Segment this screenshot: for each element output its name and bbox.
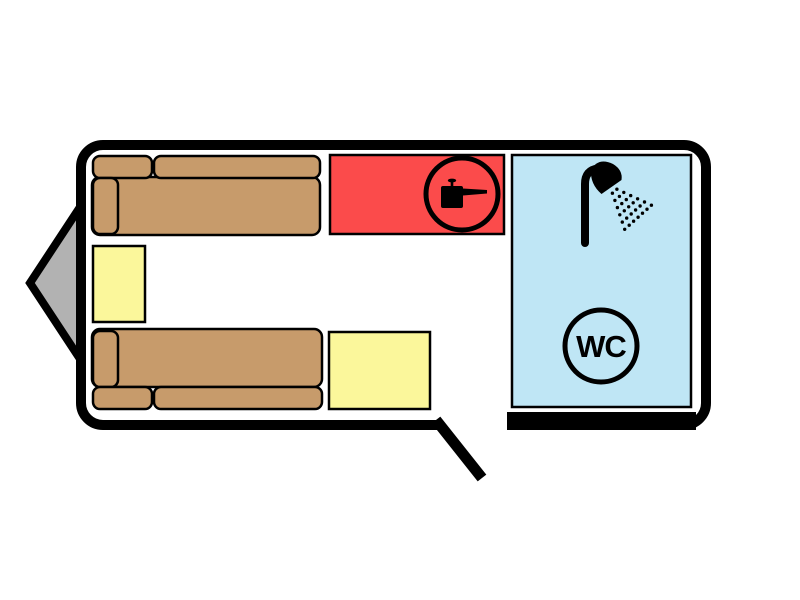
center-table	[329, 332, 430, 409]
wc-label: WC	[576, 329, 626, 364]
side-table-left	[93, 246, 145, 322]
sofa-bottom-backrest-right	[154, 387, 322, 409]
caravan-floor-plan: WC	[0, 0, 800, 600]
sofa-top-armrest	[93, 178, 118, 234]
sofa-top-backrest-right	[154, 156, 320, 178]
kitchen-unit	[330, 155, 504, 234]
sofa-bed-top	[92, 156, 320, 235]
sofa-top-seat	[92, 177, 320, 235]
bathroom: WC	[512, 155, 691, 407]
hitch-drawbar-triangle	[30, 204, 82, 362]
floor-plan-canvas: WC	[0, 0, 800, 600]
sofa-bed-bottom	[92, 329, 322, 409]
kitchen-counter	[330, 155, 504, 234]
sofa-top-backrest-left	[93, 156, 152, 178]
bottom-wall-segment	[506, 412, 696, 430]
sofa-bottom-seat	[92, 329, 322, 387]
sofa-bottom-armrest	[93, 331, 118, 387]
sofa-bottom-backrest-left	[93, 387, 152, 409]
